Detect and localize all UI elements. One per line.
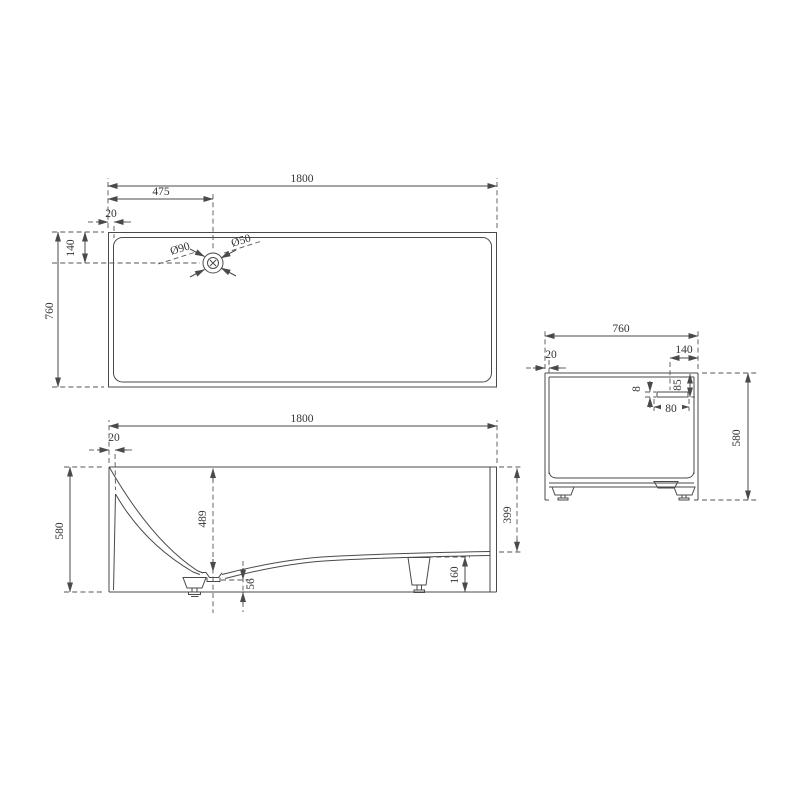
side-view-outline bbox=[545, 373, 698, 500]
drain-cross bbox=[210, 260, 216, 266]
dim-drain-outer-dia: Ø90 bbox=[169, 240, 192, 257]
dim-front-base-height: 160 bbox=[449, 566, 461, 584]
dim-side-overflow-height: 8 bbox=[631, 386, 643, 392]
dim-front-drain-floor: 56 bbox=[245, 578, 257, 590]
dim-top-drain-edge: 140 bbox=[65, 239, 77, 257]
dim-front-rim: 20 bbox=[108, 432, 120, 444]
dim-top-drain-offset: 475 bbox=[152, 186, 170, 198]
dim-drain-inner-dia: Ø50 bbox=[230, 232, 253, 249]
drain-plan bbox=[203, 253, 223, 273]
overflow-slot bbox=[657, 392, 688, 397]
dim-front-depth: 489 bbox=[197, 510, 209, 528]
top-view: 1800 475 20 760 140 Ø90 bbox=[44, 173, 497, 387]
dim-side-overflow-width: 80 bbox=[665, 403, 677, 415]
dim-front-length: 1800 bbox=[291, 413, 314, 425]
drawing-sheet: 1800 475 20 760 140 Ø90 bbox=[0, 0, 800, 800]
side-left-foot bbox=[552, 487, 574, 500]
top-view-outline bbox=[109, 233, 497, 388]
front-view-outline bbox=[109, 467, 497, 597]
side-view: 760 20 140 85 8 bbox=[526, 323, 757, 500]
dim-front-height: 580 bbox=[54, 522, 66, 540]
dim-side-height: 580 bbox=[731, 429, 743, 447]
front-view-dimensions: 1800 20 580 489 56 bbox=[54, 413, 523, 613]
dim-side-rim: 20 bbox=[545, 349, 557, 361]
dim-side-width: 760 bbox=[612, 323, 630, 335]
dim-top-rim: 20 bbox=[105, 208, 117, 220]
front-left-foot bbox=[183, 578, 206, 597]
dim-front-shallow-depth: 399 bbox=[502, 506, 514, 524]
dim-top-width: 760 bbox=[44, 302, 56, 320]
dim-top-length: 1800 bbox=[291, 173, 314, 185]
dim-side-overflow-offset: 140 bbox=[675, 344, 693, 356]
top-view-dimensions: 1800 475 20 760 140 Ø90 bbox=[44, 173, 497, 387]
side-right-foot bbox=[674, 487, 695, 500]
front-right-foot bbox=[408, 558, 430, 593]
front-view: 1800 20 580 489 56 bbox=[54, 413, 523, 613]
side-view-dimensions: 760 20 140 85 8 bbox=[526, 323, 757, 500]
technical-drawing-canvas: 1800 475 20 760 140 Ø90 bbox=[0, 0, 800, 800]
dim-side-overflow-top: 85 bbox=[672, 379, 684, 391]
